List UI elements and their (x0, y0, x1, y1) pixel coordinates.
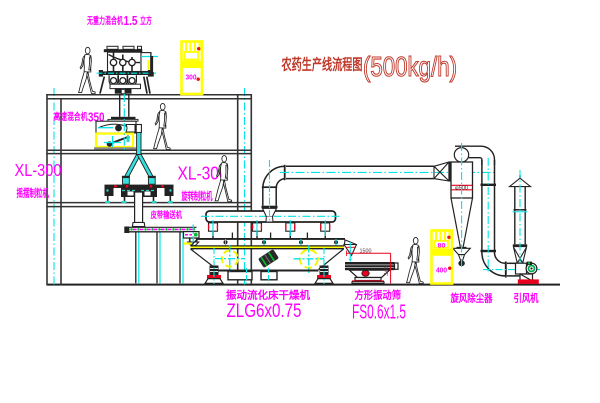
svg-text:无重力混合机: 无重力混合机 (86, 15, 123, 27)
svg-text:方形振动筛: 方形振动筛 (355, 289, 402, 302)
svg-text:农药生产线流程图: 农药生产线流程图 (281, 56, 363, 74)
svg-text:300: 300 (186, 73, 197, 82)
svg-text:1.5: 1.5 (124, 14, 138, 28)
svg-text:400: 400 (436, 266, 447, 275)
svg-text:FS0.6x1.5: FS0.6x1.5 (352, 302, 406, 324)
svg-text:皮带输送机: 皮带输送机 (150, 209, 182, 220)
svg-text:80: 80 (438, 243, 447, 249)
svg-text:XL-300: XL-300 (15, 160, 62, 180)
svg-text:旋风除尘器: 旋风除尘器 (450, 292, 493, 305)
svg-text:立方: 立方 (140, 15, 152, 27)
svg-text:ZLG6x0.75: ZLG6x0.75 (227, 300, 302, 322)
svg-text:旋转制粒机: 旋转制粒机 (181, 190, 213, 203)
svg-text:(500kg/h): (500kg/h) (363, 51, 457, 82)
svg-text:摇摆制粒机: 摇摆制粒机 (17, 187, 50, 200)
svg-text:引风机: 引风机 (514, 292, 539, 305)
svg-text:345: 345 (384, 266, 390, 276)
svg-text:高速混合机: 高速混合机 (54, 111, 88, 123)
svg-text:1500: 1500 (360, 249, 372, 255)
